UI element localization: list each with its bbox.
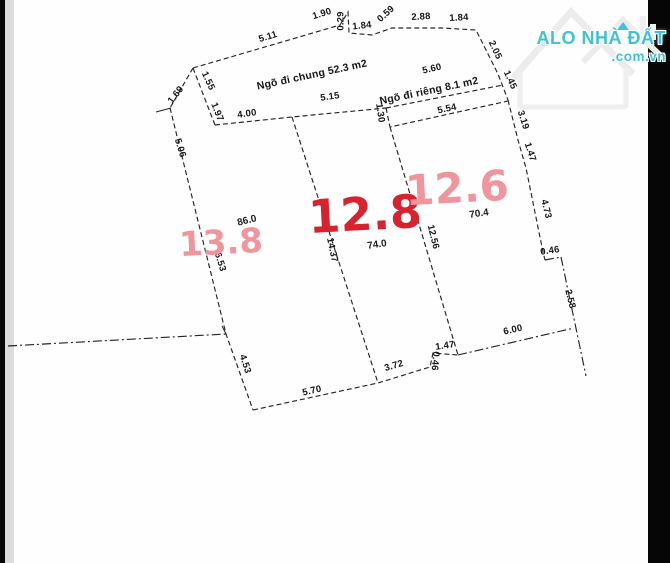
- dimension-label: 5.15: [320, 90, 341, 104]
- dimension-label: 5.54: [436, 102, 457, 117]
- dimension-label: 2.88: [411, 11, 431, 23]
- watermark-domain-text: .com.vn: [611, 49, 666, 64]
- watermark-brand-text: ALO NHÀ ĐẤT: [537, 28, 667, 49]
- dimension-label: 0.29: [336, 11, 347, 30]
- dimension-label: 3.72: [383, 358, 405, 374]
- plot-survey-diagram: 5.111.900.291.840.592.881.842.051.451.69…: [0, 0, 670, 563]
- dimension-label: 1.97: [208, 101, 225, 123]
- alo-nha-dat-watermark: ALO NHÀ ĐẤT .com.vn: [505, 0, 670, 115]
- alley-label: Ngõ đi riêng 8.1 m2: [379, 75, 480, 108]
- dimension-label: 5.11: [257, 29, 278, 45]
- dimension-label: 1.47: [522, 141, 538, 163]
- dimension-label: 1.90: [311, 6, 333, 22]
- dimension-label: 2.58: [562, 288, 577, 309]
- dimension-label: 1.55: [199, 70, 217, 92]
- dimension-label: 2.05: [486, 39, 504, 61]
- plot-area-m2-label: 70.4: [469, 207, 490, 221]
- dimension-label: 1.47: [435, 339, 456, 353]
- dimension-label: 6.00: [502, 322, 523, 337]
- plot-area-label: 13.8: [178, 221, 264, 265]
- dimension-label: 1.84: [449, 12, 469, 24]
- dimension-label: 0.46: [540, 244, 561, 258]
- plot-area-label: 12.6: [404, 161, 510, 215]
- dimension-label: 5.60: [421, 61, 442, 76]
- dimension-label: 5.06: [172, 137, 188, 159]
- dimension-label: 0.46: [429, 351, 442, 371]
- dimension-label: 0.59: [375, 3, 397, 24]
- dimension-label: 4.73: [538, 198, 553, 219]
- dimension-label: 1.69: [166, 84, 187, 106]
- alley-label: Ngõ đi chung 52.3 m2: [256, 57, 369, 92]
- dimension-label: 12.56: [425, 224, 442, 251]
- dimension-label: 4.00: [237, 107, 258, 121]
- dimension-label: 5.70: [301, 383, 322, 398]
- dimension-label: 4.53: [237, 353, 253, 375]
- plot-area-m2-label: 74.0: [367, 238, 388, 252]
- dimension-label: 1.84: [352, 20, 372, 33]
